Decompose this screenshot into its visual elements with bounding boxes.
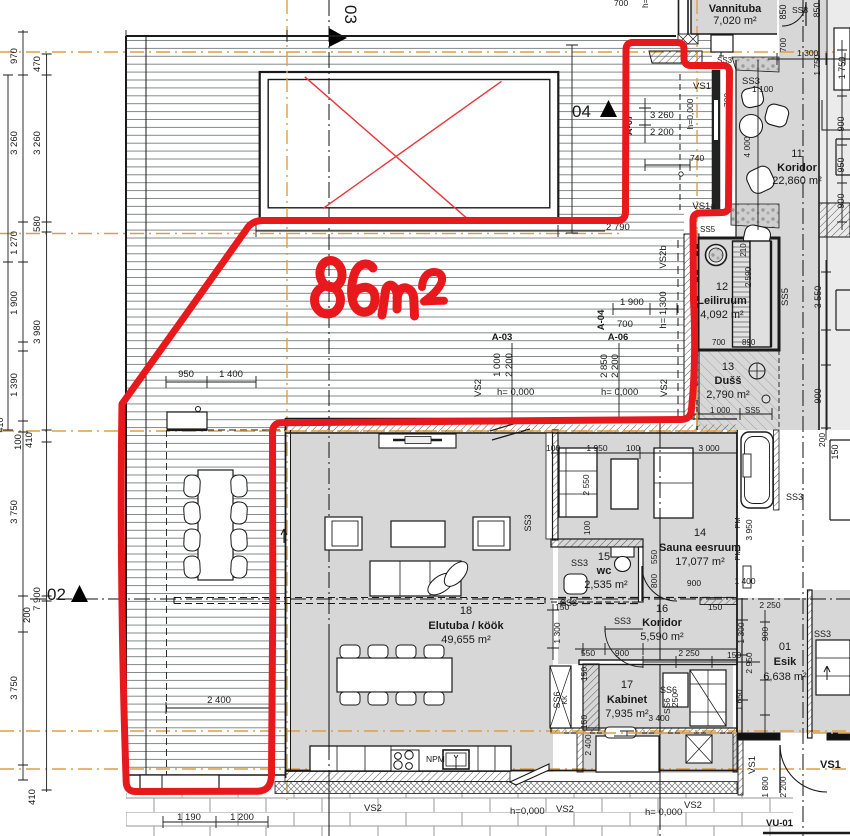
svg-text:1 650: 1 650 (734, 689, 744, 711)
svg-text:h= 1,300: h= 1,300 (658, 291, 669, 328)
svg-text:1 400: 1 400 (734, 576, 756, 586)
svg-text:4,092 m²: 4,092 m² (700, 309, 744, 321)
svg-text:Vannituba: Vannituba (709, 3, 762, 15)
svg-text:580: 580 (32, 216, 43, 232)
svg-text:950: 950 (836, 157, 846, 172)
svg-text:3 550: 3 550 (813, 286, 823, 309)
svg-text:150: 150 (708, 602, 722, 612)
svg-text:VS2: VS2 (684, 800, 702, 811)
svg-text:VS2: VS2 (659, 379, 670, 397)
svg-text:2 200: 2 200 (650, 127, 674, 138)
svg-text:Dušš: Dušš (715, 375, 742, 387)
svg-text:850: 850 (812, 2, 822, 17)
svg-text:PM: PM (733, 517, 742, 528)
svg-text:4 000: 4 000 (742, 136, 752, 158)
svg-text:3 750: 3 750 (9, 500, 20, 524)
svg-text:1 000: 1 000 (710, 406, 731, 415)
svg-text:2,535 m²: 2,535 m² (584, 579, 628, 591)
svg-text:410: 410 (24, 432, 35, 448)
svg-text:h= 0,000: h= 0,000 (601, 387, 638, 398)
svg-text:3 260: 3 260 (650, 110, 674, 121)
svg-text:A-04: A-04 (596, 309, 607, 330)
svg-text:1 800: 1 800 (760, 776, 770, 798)
svg-text:100: 100 (13, 434, 24, 450)
svg-text:16: 16 (656, 603, 668, 615)
svg-text:18: 18 (460, 605, 472, 617)
svg-text:VU-01: VU-01 (766, 818, 794, 829)
svg-text:700: 700 (712, 338, 726, 347)
svg-text:Sauna eesruum: Sauna eesruum (659, 542, 741, 554)
svg-text:1 750: 1 750 (812, 54, 822, 76)
svg-text:550: 550 (649, 550, 659, 564)
svg-text:900: 900 (615, 648, 629, 658)
svg-text:2 250: 2 250 (759, 600, 781, 610)
svg-text:900: 900 (836, 193, 846, 208)
svg-text:PM: PM (733, 549, 742, 560)
svg-text:550: 550 (581, 648, 595, 658)
svg-text:150: 150 (579, 715, 589, 729)
svg-text:100: 100 (582, 521, 592, 535)
svg-text:SS5: SS5 (700, 225, 716, 234)
svg-text:KK: KK (562, 695, 569, 705)
svg-text:890: 890 (742, 338, 756, 347)
svg-text:150: 150 (555, 602, 569, 612)
svg-text:1 100: 1 100 (752, 84, 774, 94)
svg-text:22,860 m²: 22,860 m² (772, 175, 822, 187)
svg-text:2 250: 2 250 (678, 648, 700, 658)
svg-text:3 000: 3 000 (698, 443, 720, 453)
svg-text:100: 100 (626, 443, 640, 453)
svg-text:7,935 m²: 7,935 m² (605, 708, 649, 720)
svg-text:2 950: 2 950 (744, 652, 754, 674)
svg-text:470: 470 (32, 56, 43, 72)
svg-text:14: 14 (694, 527, 706, 539)
svg-text:700: 700 (614, 0, 628, 8)
svg-text:150: 150 (727, 650, 741, 660)
svg-text:410: 410 (0, 417, 5, 432)
svg-text:1 900: 1 900 (9, 291, 20, 315)
svg-text:h= 0,000: h= 0,000 (497, 387, 534, 398)
svg-text:VS1: VS1 (820, 759, 841, 771)
svg-text:1 300: 1 300 (552, 622, 562, 644)
svg-text:1 270: 1 270 (9, 231, 20, 255)
svg-text:SS5: SS5 (745, 406, 761, 415)
svg-text:SS3: SS3 (614, 616, 631, 626)
svg-text:150: 150 (830, 444, 840, 459)
svg-text:5,590 m²: 5,590 m² (640, 631, 684, 643)
svg-text:210: 210 (739, 243, 748, 257)
svg-text:15: 15 (598, 551, 610, 563)
svg-text:3 950: 3 950 (744, 519, 754, 541)
svg-text:17: 17 (621, 679, 633, 691)
svg-text:2 200: 2 200 (504, 353, 515, 377)
svg-text:100: 100 (546, 443, 560, 453)
svg-text:Kabinet: Kabinet (607, 694, 648, 706)
svg-text:h= 0,000: h= 0,000 (645, 807, 682, 818)
svg-text:2 400: 2 400 (207, 695, 231, 706)
svg-text:Koridor: Koridor (777, 162, 817, 174)
svg-text:3 750: 3 750 (9, 676, 20, 700)
svg-text:17,077 m²: 17,077 m² (675, 556, 725, 568)
svg-text:VS1: VS1 (693, 81, 711, 92)
svg-text:h=0,000: h=0,000 (510, 806, 545, 817)
svg-text:2 550: 2 550 (581, 474, 591, 496)
svg-text:1 300: 1 300 (736, 622, 746, 644)
svg-text:1 950: 1 950 (586, 443, 608, 453)
svg-text:01: 01 (779, 641, 791, 653)
svg-text:3 260: 3 260 (32, 131, 43, 155)
svg-text:Esik: Esik (774, 656, 798, 668)
svg-text:VS1: VS1 (747, 756, 758, 774)
svg-text:800: 800 (649, 574, 659, 588)
svg-text:970: 970 (9, 48, 20, 64)
svg-text:900: 900 (760, 627, 770, 641)
svg-text:410: 410 (27, 789, 38, 805)
svg-text:VS2: VS2 (364, 803, 382, 814)
svg-text:2 200: 2 200 (778, 776, 788, 798)
svg-text:02: 02 (47, 585, 66, 604)
svg-text:850: 850 (778, 4, 788, 19)
svg-text:1 200: 1 200 (230, 812, 254, 823)
svg-text:1 400: 1 400 (219, 369, 243, 380)
svg-text:11: 11 (791, 148, 802, 160)
svg-text:A-06: A-06 (608, 332, 629, 343)
svg-text:2 400: 2 400 (583, 734, 593, 756)
svg-text:SS3: SS3 (814, 629, 831, 639)
svg-text:3 260: 3 260 (9, 131, 20, 155)
svg-text:Leiliruum: Leiliruum (697, 295, 747, 307)
svg-text:VS2: VS2 (473, 379, 484, 397)
svg-text:Elutuba / köök: Elutuba / köök (428, 620, 504, 632)
svg-text:VS2b: VS2b (658, 245, 669, 268)
svg-text:3 980: 3 980 (32, 320, 43, 344)
svg-text:SS3: SS3 (786, 492, 803, 502)
svg-text:h=: h= (640, 0, 650, 8)
svg-text:740: 740 (690, 153, 704, 163)
svg-text:VS2: VS2 (556, 804, 574, 815)
svg-text:200: 200 (817, 433, 827, 447)
svg-text:SS5: SS5 (780, 288, 791, 306)
svg-text:2 850: 2 850 (599, 354, 610, 378)
svg-text:6,638 m²: 6,638 m² (763, 671, 807, 683)
svg-text:7,020 m²: 7,020 m² (713, 15, 757, 27)
svg-text:SS3: SS3 (571, 558, 588, 568)
svg-text:49,655 m²: 49,655 m² (441, 634, 491, 646)
svg-text:1 000: 1 000 (492, 353, 503, 377)
svg-text:2,790 m²: 2,790 m² (706, 389, 750, 401)
svg-text:250: 250 (670, 693, 680, 707)
svg-text:SS3: SS3 (523, 514, 533, 531)
svg-text:700: 700 (778, 38, 788, 52)
svg-text:NPM: NPM (426, 754, 445, 764)
svg-text:950: 950 (178, 369, 194, 380)
svg-text:A-03: A-03 (492, 332, 513, 343)
svg-text:1 900: 1 900 (620, 297, 644, 308)
svg-text:150: 150 (579, 667, 589, 681)
svg-text:Koridor: Koridor (642, 617, 682, 629)
svg-text:3 400: 3 400 (648, 713, 670, 723)
svg-text:h=0,000: h=0,000 (685, 98, 695, 129)
svg-text:1 390: 1 390 (9, 373, 20, 397)
svg-text:03: 03 (341, 5, 360, 24)
svg-text:1 750: 1 750 (837, 57, 847, 80)
svg-text:700: 700 (617, 319, 633, 330)
svg-text:SS3: SS3 (792, 5, 808, 15)
svg-text:1 190: 1 190 (177, 812, 201, 823)
svg-text:SS6: SS6 (552, 691, 562, 708)
svg-text:12: 12 (716, 281, 728, 293)
svg-text:7 900: 7 900 (32, 587, 43, 611)
svg-text:2 590: 2 590 (744, 266, 753, 287)
svg-text:900: 900 (687, 578, 701, 588)
svg-text:2 200: 2 200 (610, 354, 621, 378)
svg-text:wc: wc (596, 565, 612, 577)
svg-text:04: 04 (572, 102, 591, 121)
svg-text:900: 900 (836, 116, 846, 131)
svg-text:13: 13 (722, 361, 734, 373)
svg-text:900: 900 (813, 388, 823, 403)
